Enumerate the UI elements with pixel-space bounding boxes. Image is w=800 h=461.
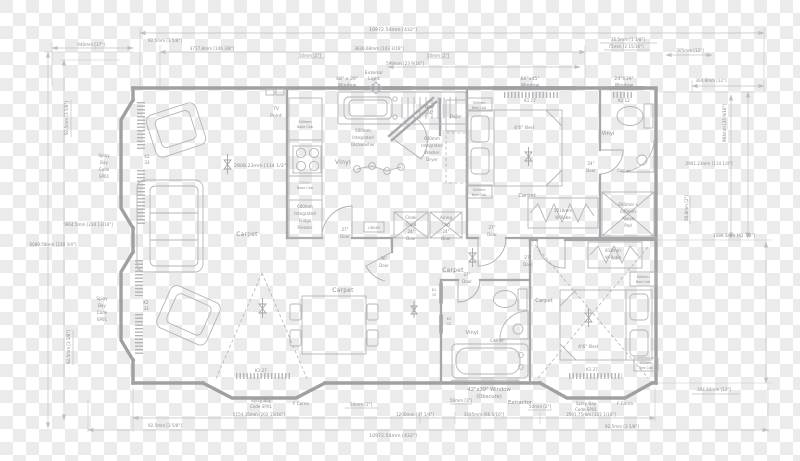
bed2	[560, 290, 652, 360]
window-code: 12	[447, 322, 451, 326]
window-code: K1 27	[586, 367, 598, 372]
window-code: K1 27	[255, 368, 267, 373]
airing-cupboard-label: Airing	[440, 215, 452, 220]
dim-label: 599mm [23 9/16"]	[386, 61, 424, 66]
dim-label: 92.5mm [3 5/8"]	[66, 330, 71, 364]
dim-label: 50mm [2"]	[450, 398, 473, 403]
dim-label: 2591.75mm [102 1/16"]	[566, 412, 616, 417]
door-label: Door	[425, 104, 435, 109]
corner-unit-label: Corner	[617, 168, 631, 173]
bedroom1-furniture	[466, 98, 598, 228]
bed-cab-label: 300mm	[636, 275, 650, 279]
window-code: K2	[447, 317, 451, 321]
dim-label: 5964.5mm [234 13/16"]	[63, 222, 113, 227]
splay-bay-note: Code SP01	[250, 404, 272, 409]
flooring-label: Carpet	[535, 298, 552, 304]
flooring-label: Vinyl	[335, 160, 351, 166]
bedroom2-furniture	[560, 242, 658, 371]
dim-label: 1089.5mm [42 7/8"]	[713, 233, 755, 238]
window-code: 33	[144, 160, 150, 165]
window-code: 15	[432, 293, 436, 297]
cloak-cupboard-label: Cupd	[406, 222, 417, 227]
washer-label: Integrated	[421, 143, 443, 148]
bath-tub	[452, 344, 528, 378]
dim-label: 304.84mm [12"]	[697, 387, 731, 392]
window-label: Window	[338, 83, 357, 89]
dim-label: 50mm [2"]	[350, 402, 373, 407]
dining-furniture	[290, 296, 378, 354]
washer-label: 600mm	[424, 136, 440, 141]
bed-cab-label: Bed Cab	[636, 280, 650, 284]
dim-label: 1685mm [66 5/16"]	[464, 412, 505, 417]
window-label: Window	[615, 83, 634, 89]
window-label: 24"X39"	[614, 76, 633, 82]
fridge-label: Freezer	[297, 225, 312, 230]
window-label: 66"x45"	[520, 76, 539, 82]
wardrobe1-unit	[528, 198, 598, 228]
corner-unit-label: Corner	[490, 338, 504, 343]
window-label: 42"x39" Window	[467, 387, 511, 393]
bed-cab-label: 300mm	[472, 101, 486, 105]
dining-chair	[367, 304, 378, 320]
door-label: 24"	[587, 161, 594, 166]
dishwasher-label: Dishwasher	[351, 142, 375, 147]
unit-code-label: OB04R	[368, 226, 380, 230]
corner-note: F Corna	[617, 401, 633, 406]
bed-label: 4'6" Bed	[578, 344, 598, 350]
toilet	[494, 289, 528, 310]
door-label: 24"	[426, 110, 433, 115]
airing-cupboard-label: Door	[441, 236, 451, 241]
hob	[293, 146, 321, 173]
splay-bay-note: SP01	[97, 317, 108, 322]
dim-label: 3717.8mm [146 3/8"]	[190, 46, 235, 51]
flooring-label: Carpet	[332, 288, 354, 294]
bed-cab-label: Bed Cab	[472, 106, 486, 110]
dim-label: 92.5mm [3 5/8"]	[148, 423, 182, 428]
tv-point-icon	[266, 89, 284, 95]
bed-cab-label: 300mm	[472, 188, 486, 192]
wardrobe-label: W/Robe	[605, 255, 621, 260]
splay-bay-note: Splay	[98, 153, 110, 158]
dim-label: 92.5mm [3 5/8"]	[148, 38, 182, 43]
cloak-cupboard-label: Cloak	[405, 215, 417, 220]
above-pod-label: Above	[622, 216, 635, 221]
washer-label: Washer	[424, 150, 440, 155]
window-label: Window	[521, 83, 540, 89]
splay-bay-note: Bay	[98, 303, 106, 308]
dining-chair	[367, 330, 378, 346]
dim-label: 50.8mm [2"]	[684, 195, 689, 221]
floor-plan-page: 10972.54mm [432"] 940mm [37"] 92.5mm [3 …	[0, 0, 800, 461]
above-pod-label: 600mm	[620, 209, 636, 214]
flooring-label: Vinyl	[602, 131, 615, 137]
armchair	[144, 101, 207, 159]
window-bands	[139, 86, 644, 383]
above-pod-cupboard	[602, 192, 654, 236]
dim-label: 5154.35mm [202 15/16"]	[233, 412, 286, 417]
exterior-walls	[121, 88, 656, 398]
airing-cupboard-label: 24"	[442, 229, 449, 234]
splay-bay-note: Splay Bay	[576, 401, 597, 406]
window-code: K1 27	[524, 98, 536, 103]
dim-label: 904mm [35 9/16"]	[722, 104, 727, 142]
dim-label: 1200mm [47 1/4"]	[396, 412, 434, 417]
tv-point-label: TV	[272, 106, 280, 112]
door-label: Door	[487, 232, 497, 237]
base-cab-label: 300mm	[298, 181, 312, 185]
splay-bay-note: Bay	[100, 160, 108, 165]
dim-label: 6089.58mm [239 3/4"]	[30, 242, 77, 247]
bathroom2-fittings	[452, 289, 528, 378]
flooring-label: Carpet	[518, 193, 535, 199]
sink-unit	[338, 92, 466, 124]
washer-label: Dryer	[426, 157, 438, 162]
window-code: K2	[143, 300, 149, 305]
dining-table	[302, 296, 366, 354]
bed1	[468, 110, 562, 186]
door-label: Door	[340, 234, 350, 239]
above-pod-label: 600mm x	[618, 202, 638, 207]
wardrobe-label: W/Robe	[555, 215, 571, 220]
window-label: 48" x 39"	[336, 76, 358, 82]
dining-chair	[290, 304, 301, 320]
door-label: Door	[586, 168, 596, 173]
armchair	[154, 283, 222, 347]
dim-label: 940mm [37"]	[77, 42, 105, 47]
window-code: K2 12	[618, 98, 630, 103]
door-label: 36"	[380, 256, 387, 261]
flooring-label: Carpet	[236, 232, 258, 238]
door-label: Door	[523, 262, 533, 267]
dim-label: 75mm [2 15/16"]	[608, 44, 644, 49]
sofa	[137, 180, 203, 272]
room-width-note: 2908.23mm [114 1/2"]	[234, 163, 288, 169]
tv-point-label: Point	[270, 113, 282, 119]
dim-label: 50mm [2"]	[299, 53, 322, 58]
dining-chair	[290, 330, 301, 346]
base-cab-label: Base Cab	[297, 186, 313, 190]
door-label: 27"	[341, 227, 348, 232]
splay-bay-note: Splay	[96, 296, 108, 301]
bed-cab-label: 300mm	[639, 361, 653, 365]
floor-plan-drawing: 10972.54mm [432"] 940mm [37"] 92.5mm [3 …	[0, 0, 800, 461]
exterior-light-label: Exterior	[365, 70, 384, 76]
dishwasher-label: Integrated	[352, 135, 374, 140]
flooring-label: Vinyl	[466, 330, 479, 336]
splay-bay-note: SP01	[99, 174, 110, 179]
splay-bay-note: Code SP01	[575, 407, 597, 412]
door-label: 27"	[524, 255, 531, 260]
dim-label: 50mm [2"]	[529, 404, 552, 409]
bed-label: 4'6" Bed	[514, 125, 534, 131]
window-code: 33	[143, 306, 149, 311]
base-cab-label: Base Cab	[297, 125, 313, 129]
exterior-light-label: Light	[368, 76, 380, 82]
wardrobe-label: 818mm	[605, 248, 621, 253]
bed-cab-label: Bed Cab	[639, 366, 653, 370]
corner-note: F Corna	[293, 401, 309, 406]
dim-label: 10972.54mm [432"]	[369, 433, 417, 439]
dim-label: 50mm [2"]	[427, 53, 450, 58]
base-cab-label: 500mm	[298, 120, 312, 124]
dim-label: 92.5mm [3 5/8"]	[605, 424, 639, 429]
door-label: Door	[379, 263, 389, 268]
dim-label: 304.8mm [12"]	[695, 78, 727, 83]
washer-dryer-unit	[446, 133, 466, 183]
dim-label: 305mm [12"]	[676, 48, 704, 53]
dim-label: 35.5mm [1 3/8"]	[611, 37, 645, 42]
boiler-label: Boiler	[450, 114, 462, 119]
door-label: Door	[462, 279, 472, 284]
wardrobe-label: 1218mm	[554, 208, 572, 213]
dishwasher-label: 600mm	[355, 128, 371, 133]
window-label: (Obscure)	[476, 394, 501, 400]
airing-cupboard-label: Cbd	[442, 222, 450, 227]
sight-lines	[215, 245, 648, 381]
extractor-label: Extractor	[508, 400, 533, 406]
dim-label: 10972.54mm [432"]	[369, 27, 417, 33]
fridge-label: Fridge	[299, 218, 312, 223]
fridge-label: Integrated	[294, 211, 316, 216]
ceiling-lights	[354, 163, 405, 175]
cloak-cupboard-label: 24"	[407, 229, 414, 234]
splay-bay-note: Code	[99, 167, 110, 172]
door-label: 27"	[463, 272, 470, 277]
corner-shower	[500, 311, 528, 339]
toilet	[617, 104, 653, 128]
dim-label: 2901.23mm [114 1/4"]	[686, 161, 733, 166]
splay-bay-note: Code	[97, 310, 108, 315]
door-label: 27"	[488, 225, 495, 230]
flooring-label: Carpet	[442, 268, 464, 274]
cloak-cupboard-label: Door	[406, 236, 416, 241]
dim-label: 3636.68mm [143 3/16"]	[354, 46, 404, 51]
fridge-label: 600mm	[297, 204, 313, 209]
window-code: K2	[144, 154, 150, 159]
bed-cab-label: Bed Cab	[472, 193, 486, 197]
bathroom2-window-band	[452, 380, 518, 383]
splay-bay-note: Splay Bay	[251, 398, 272, 403]
dim-label: 92.5mm [3 5/8"]	[64, 101, 69, 135]
above-pod-label: Pod	[624, 223, 632, 228]
window-code: K1	[432, 288, 436, 292]
